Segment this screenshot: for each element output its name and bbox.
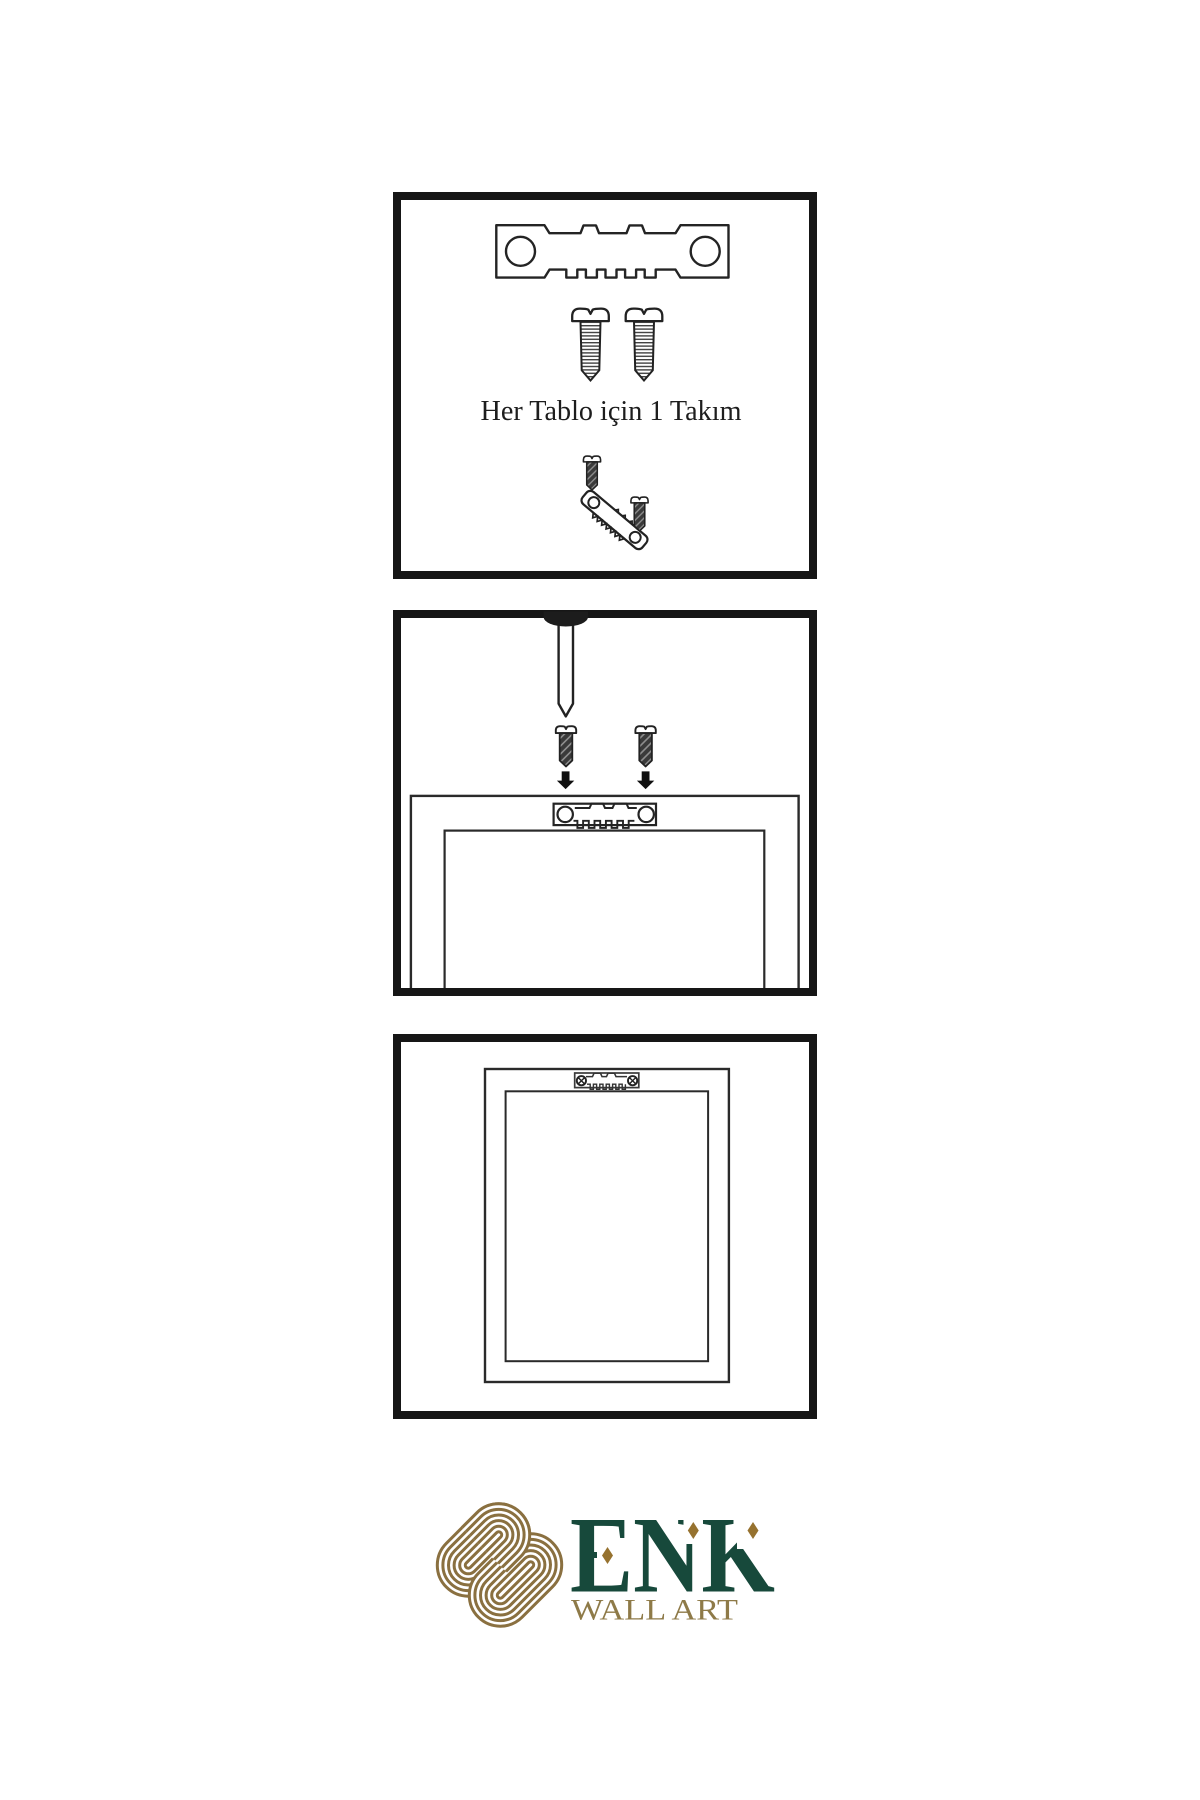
- svg-text:WALL ART: WALL ART: [571, 1594, 738, 1627]
- svg-text:Her Tablo için 1 Takım: Her Tablo için 1 Takım: [481, 395, 742, 427]
